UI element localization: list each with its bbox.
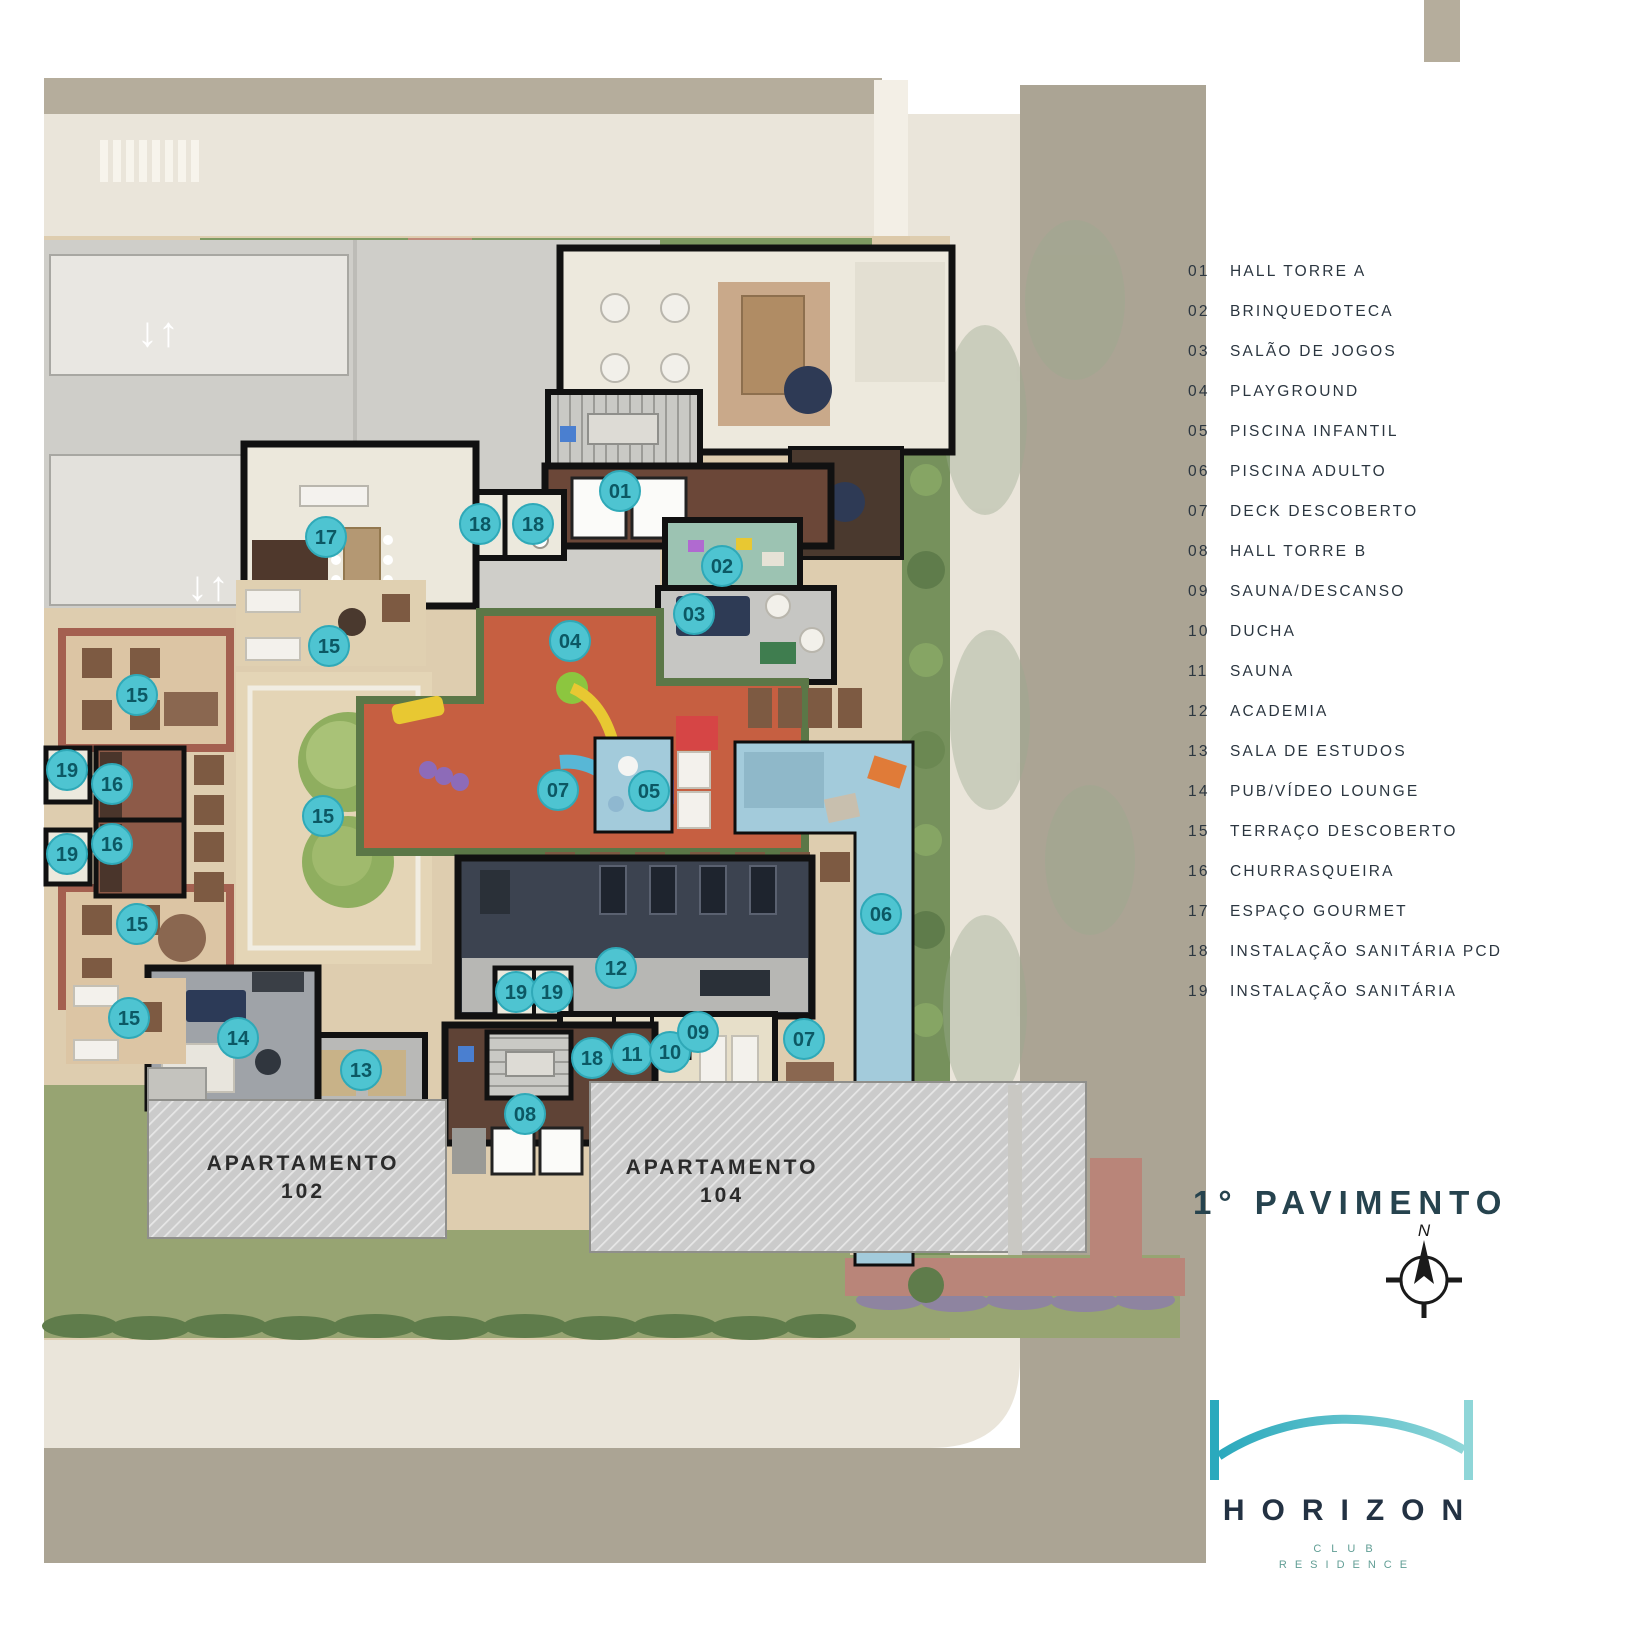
- plan-marker-11: 11: [612, 1034, 652, 1074]
- plan-marker-03: 03: [674, 594, 714, 634]
- legend-item-label: PISCINA ADULTO: [1230, 463, 1387, 481]
- legend-item-label: INSTALAÇÃO SANITÁRIA PCD: [1230, 943, 1502, 961]
- legend-item-number: 18: [1188, 943, 1220, 961]
- svg-text:08: 08: [514, 1104, 536, 1126]
- apartment-104-number: 104: [700, 1184, 744, 1207]
- legend-item-number: 12: [1188, 703, 1220, 721]
- legend-item: 03SALÃO DE JOGOS: [1188, 332, 1502, 372]
- legend-item: 10DUCHA: [1188, 612, 1502, 652]
- svg-text:18: 18: [522, 514, 544, 536]
- svg-text:15: 15: [126, 914, 148, 936]
- svg-text:15: 15: [126, 685, 148, 707]
- plan-marker-15: 15: [117, 904, 157, 944]
- svg-text:06: 06: [870, 904, 892, 926]
- legend-item-number: 19: [1188, 983, 1220, 1001]
- apartment-104-label: APARTAMENTO: [626, 1156, 819, 1179]
- plan-marker-06: 06: [861, 894, 901, 934]
- svg-text:15: 15: [118, 1008, 140, 1030]
- svg-text:19: 19: [541, 982, 563, 1004]
- legend-item-label: PUB/VÍDEO LOUNGE: [1230, 783, 1419, 801]
- legend-item-label: TERRAÇO DESCOBERTO: [1230, 823, 1458, 841]
- svg-text:18: 18: [581, 1048, 603, 1070]
- legend-item: 09SAUNA/DESCANSO: [1188, 572, 1502, 612]
- legend-item-label: SAUNA/DESCANSO: [1230, 583, 1406, 601]
- svg-text:07: 07: [547, 780, 569, 802]
- plan-marker-07: 07: [784, 1019, 824, 1059]
- legend-item-label: ACADEMIA: [1230, 703, 1329, 721]
- legend-item-number: 13: [1188, 743, 1220, 761]
- plan-marker-18: 18: [572, 1038, 612, 1078]
- legend-item-number: 06: [1188, 463, 1220, 481]
- legend: 01HALL TORRE A02BRINQUEDOTECA03SALÃO DE …: [1188, 252, 1502, 1012]
- legend-item-label: HALL TORRE A: [1230, 263, 1366, 281]
- plan-marker-07: 07: [538, 770, 578, 810]
- legend-item-number: 15: [1188, 823, 1220, 841]
- legend-item: 17ESPAÇO GOURMET: [1188, 892, 1502, 932]
- legend-item-label: SALA DE ESTUDOS: [1230, 743, 1407, 761]
- logo-name: HORIZON: [1178, 1494, 1508, 1528]
- svg-text:09: 09: [687, 1022, 709, 1044]
- svg-text:13: 13: [350, 1060, 372, 1082]
- legend-item-number: 03: [1188, 343, 1220, 361]
- legend-item-label: SAUNA: [1230, 663, 1294, 681]
- plan-marker-19: 19: [532, 972, 572, 1012]
- legend-item: 04PLAYGROUND: [1188, 372, 1502, 412]
- legend-item-number: 01: [1188, 263, 1220, 281]
- legend-item-number: 14: [1188, 783, 1220, 801]
- plan-marker-04: 04: [550, 621, 590, 661]
- svg-text:07: 07: [793, 1029, 815, 1051]
- plan-marker-05: 05: [629, 771, 669, 811]
- legend-item-number: 10: [1188, 623, 1220, 641]
- legend-item-number: 05: [1188, 423, 1220, 441]
- legend-item: 08HALL TORRE B: [1188, 532, 1502, 572]
- legend-item-label: HALL TORRE B: [1230, 543, 1367, 561]
- legend-item: 07DECK DESCOBERTO: [1188, 492, 1502, 532]
- svg-text:05: 05: [638, 781, 660, 803]
- plan-marker-09: 09: [678, 1012, 718, 1052]
- plan-marker-16: 16: [92, 764, 132, 804]
- plan-marker-12: 12: [596, 948, 636, 988]
- svg-text:03: 03: [683, 604, 705, 626]
- legend-item: 15TERRAÇO DESCOBERTO: [1188, 812, 1502, 852]
- plan-marker-13: 13: [341, 1050, 381, 1090]
- svg-text:19: 19: [56, 760, 78, 782]
- legend-item-label: PISCINA INFANTIL: [1230, 423, 1399, 441]
- page-title: 1° PAVIMENTO: [1193, 1184, 1508, 1222]
- legend-item-number: 04: [1188, 383, 1220, 401]
- plan-marker-19: 19: [47, 750, 87, 790]
- svg-text:02: 02: [711, 556, 733, 578]
- legend-item-label: BRINQUEDOTECA: [1230, 303, 1394, 321]
- legend-item-number: 08: [1188, 543, 1220, 561]
- svg-text:15: 15: [318, 636, 340, 658]
- floorplan-page: { "plan": { "title": "1° PAVIMENTO", "co…: [0, 0, 1631, 1648]
- plan-marker-15: 15: [309, 626, 349, 666]
- legend-item-number: 02: [1188, 303, 1220, 321]
- svg-text:16: 16: [101, 834, 123, 856]
- legend-item: 16CHURRASQUEIRA: [1188, 852, 1502, 892]
- legend-item-label: DECK DESCOBERTO: [1230, 503, 1418, 521]
- legend-item: 18INSTALAÇÃO SANITÁRIA PCD: [1188, 932, 1502, 972]
- plan-marker-08: 08: [505, 1094, 545, 1134]
- svg-text:17: 17: [315, 527, 337, 549]
- svg-text:14: 14: [227, 1028, 250, 1050]
- plan-marker-19: 19: [496, 972, 536, 1012]
- svg-text:18: 18: [469, 514, 491, 536]
- legend-item-number: 09: [1188, 583, 1220, 601]
- logo-club-label: CLUB: [1178, 1543, 1508, 1555]
- legend-item: 01HALL TORRE A: [1188, 252, 1502, 292]
- ramp-arrows-icon: ↓↑: [187, 562, 229, 609]
- legend-item: 12ACADEMIA: [1188, 692, 1502, 732]
- apartment-102-number: 102: [281, 1180, 325, 1203]
- svg-text:19: 19: [505, 982, 527, 1004]
- plan-marker-14: 14: [218, 1018, 258, 1058]
- legend-item-label: ESPAÇO GOURMET: [1230, 903, 1408, 921]
- legend-item-number: 07: [1188, 503, 1220, 521]
- legend-item: 14PUB/VÍDEO LOUNGE: [1188, 772, 1502, 812]
- svg-text:12: 12: [605, 958, 627, 980]
- ramp-arrows-icon: ↓↑: [137, 308, 179, 355]
- plan-marker-18: 18: [460, 504, 500, 544]
- plan-marker-15: 15: [303, 796, 343, 836]
- plan-marker-01: 01: [600, 471, 640, 511]
- legend-item-label: INSTALAÇÃO SANITÁRIA: [1230, 983, 1457, 1001]
- logo-residence-label: RESIDENCE: [1178, 1559, 1508, 1571]
- svg-text:19: 19: [56, 844, 78, 866]
- legend-item-label: CHURRASQUEIRA: [1230, 863, 1395, 881]
- compass-icon: N: [1368, 1218, 1480, 1330]
- plan-marker-17: 17: [306, 517, 346, 557]
- legend-item-number: 16: [1188, 863, 1220, 881]
- legend-item-label: PLAYGROUND: [1230, 383, 1359, 401]
- legend-item: 19INSTALAÇÃO SANITÁRIA: [1188, 972, 1502, 1012]
- svg-text:11: 11: [621, 1044, 642, 1066]
- svg-text:01: 01: [609, 481, 631, 503]
- legend-item: 05PISCINA INFANTIL: [1188, 412, 1502, 452]
- svg-text:04: 04: [559, 631, 582, 653]
- apartment-102-label: APARTAMENTO: [207, 1152, 400, 1175]
- legend-item-number: 17: [1188, 903, 1220, 921]
- plan-marker-15: 15: [117, 675, 157, 715]
- compass-north-label: N: [1418, 1221, 1431, 1240]
- legend-item-label: SALÃO DE JOGOS: [1230, 343, 1397, 361]
- plan-marker-02: 02: [702, 546, 742, 586]
- legend-item-label: DUCHA: [1230, 623, 1296, 641]
- legend-item-number: 11: [1188, 663, 1220, 681]
- legend-item: 11SAUNA: [1188, 652, 1502, 692]
- plan-marker-16: 16: [92, 824, 132, 864]
- legend-item: 06PISCINA ADULTO: [1188, 452, 1502, 492]
- svg-text:10: 10: [659, 1042, 681, 1064]
- svg-text:16: 16: [101, 774, 123, 796]
- stair-core-a: [548, 392, 700, 468]
- svg-text:15: 15: [312, 806, 334, 828]
- legend-item: 13SALA DE ESTUDOS: [1188, 732, 1502, 772]
- horizon-logo-icon: [1192, 1390, 1492, 1490]
- plan-marker-15: 15: [109, 998, 149, 1038]
- legend-item: 02BRINQUEDOTECA: [1188, 292, 1502, 332]
- plan-marker-19: 19: [47, 834, 87, 874]
- plan-marker-18: 18: [513, 504, 553, 544]
